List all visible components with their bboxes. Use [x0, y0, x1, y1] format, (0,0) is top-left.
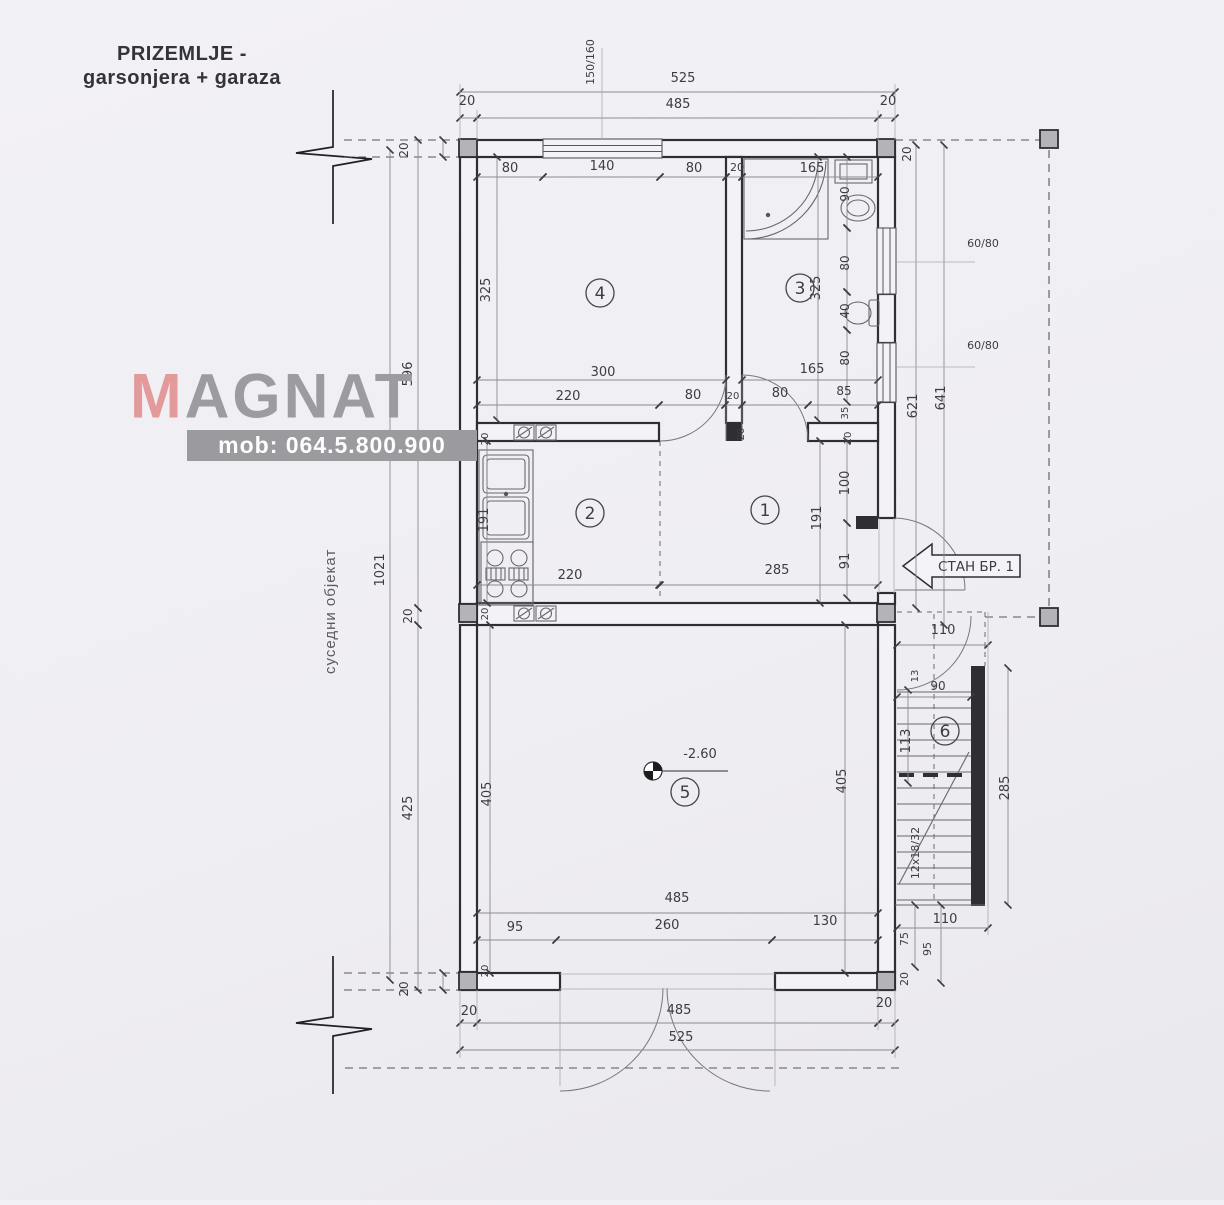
door-room3: [742, 375, 808, 441]
dim-label-0: 150/160: [584, 39, 597, 85]
room-number-5: 5: [671, 778, 699, 806]
room-number-text-5: 5: [680, 783, 691, 803]
dim-label-11: 165: [800, 161, 825, 176]
title-line-2: garsonjera + garaza: [62, 66, 302, 90]
dim-label-43: -2.60: [683, 747, 717, 762]
kitchen-tap: [504, 492, 508, 496]
stair-outer-wall: [971, 666, 985, 906]
dim-label-65: 525: [669, 1030, 694, 1045]
dim-label-38: 91: [838, 553, 853, 570]
room-number-6: 6: [931, 717, 959, 745]
dim-label-16: 40: [838, 303, 852, 318]
room-number-text-3: 3: [795, 279, 806, 299]
drawing-sheet: PRIZEMLJE - garsonjera + garaza MAGNAT m…: [0, 0, 1224, 1200]
phone-banner: mob: 064.5.800.900: [187, 430, 477, 461]
dim-label-64: 485: [667, 1003, 692, 1018]
dim-label-5: 20: [900, 146, 914, 161]
dim-label-24: 220: [556, 389, 581, 404]
walls: [460, 140, 895, 990]
dim-label-52: 12x18/32: [909, 827, 922, 879]
dim-label-60: 95: [921, 942, 934, 956]
dim-label-10: 20: [730, 161, 744, 174]
kitchen-sink-1: [483, 455, 529, 493]
dim-label-37: 100: [838, 471, 853, 496]
dim-label-56: 130: [813, 914, 838, 929]
room-number-text-6: 6: [940, 722, 951, 742]
room-number-text-1: 1: [760, 501, 771, 521]
dim-label-34: 220: [558, 568, 583, 583]
dim-label-22: 300: [591, 365, 616, 380]
dim-label-53: 485: [665, 891, 690, 906]
dim-label-7: 80: [502, 161, 519, 176]
dim-label-45: 405: [835, 769, 850, 794]
entrance-label: СТАН БР. 1: [938, 559, 1014, 575]
dim-label-23: 165: [800, 362, 825, 377]
dim-label-30: 20: [843, 432, 854, 445]
dim-label-54: 95: [507, 920, 524, 935]
neighbor-building-note: суседни објекат: [322, 514, 339, 674]
dim-label-33: 191: [477, 508, 492, 533]
magnat-logo-rest: AGNAT: [185, 361, 416, 431]
dim-label-39: 20: [736, 428, 747, 441]
door-room4: [660, 375, 726, 441]
window-right-60x80-upper: [877, 228, 896, 294]
dim-label-62: 20: [461, 1004, 478, 1019]
floor-plan-drawing: 150/160525485202020208014080201659032532…: [0, 0, 1224, 1200]
magnat-logo-text: MAGNAT: [130, 365, 482, 428]
room-number-4: 4: [586, 279, 614, 307]
elevation-marker: [644, 762, 728, 780]
dim-label-19: 60/80: [967, 339, 999, 352]
dim-label-61: 20: [898, 972, 911, 986]
dim-label-13: 325: [479, 278, 494, 303]
dim-label-12: 90: [838, 186, 852, 201]
room-number-1: 1: [751, 496, 779, 524]
magnat-logo-first-letter: M: [130, 361, 185, 431]
dim-label-15: 80: [838, 255, 852, 270]
dim-label-18: 60/80: [967, 237, 999, 250]
dim-label-20: 621: [906, 394, 921, 419]
dim-label-51: 285: [998, 776, 1013, 801]
dim-label-3: 20: [459, 94, 476, 109]
dim-label-17: 80: [838, 350, 852, 365]
washing-machine: [835, 160, 872, 183]
dim-label-59: 75: [898, 932, 911, 946]
dim-label-28: 85: [836, 384, 851, 398]
dim-label-57: 20: [480, 965, 491, 978]
room-number-text-2: 2: [585, 504, 596, 524]
room-number-text-4: 4: [595, 284, 606, 304]
dim-label-9: 80: [686, 161, 703, 176]
dim-label-1: 525: [671, 71, 696, 86]
room-numbers: 123456: [576, 274, 959, 806]
dim-label-26: 20: [727, 391, 740, 402]
dim-label-66: 20: [397, 981, 411, 996]
dim-label-63: 20: [876, 996, 893, 1011]
dim-label-46: 425: [401, 796, 416, 821]
dim-label-27: 80: [772, 386, 789, 401]
dim-label-44: 405: [480, 782, 495, 807]
dim-label-4: 20: [880, 94, 897, 109]
dim-label-55: 260: [655, 918, 680, 933]
window-right-60x80-lower: [877, 343, 896, 402]
dim-label-48: 13: [910, 670, 921, 683]
room-number-2: 2: [576, 499, 604, 527]
stove: [481, 542, 533, 603]
dim-label-50: 113: [899, 729, 914, 754]
dim-label-2: 485: [666, 97, 691, 112]
dim-label-21: 641: [934, 386, 949, 411]
window-top-150x160: [543, 139, 662, 158]
dim-label-8: 140: [590, 159, 615, 174]
wall-hatch-symbols: [514, 425, 556, 621]
dim-label-42: 20: [480, 608, 491, 621]
garage-door-left-swing: [560, 988, 663, 1091]
dim-label-47: 110: [931, 623, 956, 638]
dim-label-49: 90: [930, 679, 945, 693]
dim-label-40: 1021: [373, 553, 388, 586]
dim-label-41: 20: [401, 608, 415, 623]
page-title: PRIZEMLJE - garsonjera + garaza: [62, 42, 302, 90]
dim-label-25: 80: [685, 388, 702, 403]
title-line-1: PRIZEMLJE -: [62, 42, 302, 66]
dim-label-58: 110: [933, 912, 958, 927]
dim-label-35: 285: [765, 563, 790, 578]
dim-label-29: 35: [840, 407, 851, 420]
magnat-watermark: MAGNAT mob: 064.5.800.900: [130, 366, 482, 461]
dim-label-6: 20: [397, 142, 411, 157]
dim-label-36: 191: [810, 506, 825, 531]
